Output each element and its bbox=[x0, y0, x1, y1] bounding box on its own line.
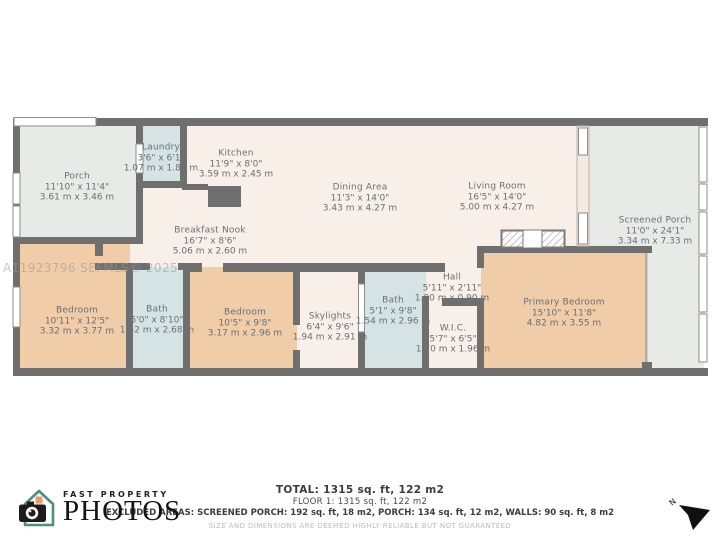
kitchen-counter-block bbox=[208, 186, 241, 207]
wall-bedroom1-entry bbox=[95, 244, 103, 256]
wall-top bbox=[96, 118, 708, 126]
window-right-2 bbox=[699, 184, 707, 210]
sliding-door-line bbox=[645, 253, 648, 362]
wall-bedroom2-skylights-b bbox=[293, 350, 300, 368]
room-label-living: Living Room 16'5" x 14'0" 5.00 m x 4.27 … bbox=[460, 181, 534, 213]
wall-porch-bottom bbox=[13, 237, 140, 244]
room-label-screened-porch: Screened Porch 11'0" x 24'1" 3.34 m x 7.… bbox=[618, 215, 692, 247]
window-porch-top bbox=[14, 118, 96, 127]
room-label-kitchen: Kitchen 11'9" x 8'0" 3.59 m x 2.45 m bbox=[199, 148, 273, 180]
fast-property-photos-logo: FAST PROPERTY PHOTOS bbox=[18, 487, 181, 529]
window-porch-left-2 bbox=[13, 206, 20, 237]
north-label: N bbox=[668, 497, 678, 508]
north-arrow: N bbox=[655, 478, 715, 536]
floor-plan-page: A11923796 SEFMLS© 2025 Porch 11'10" x 11… bbox=[0, 0, 720, 540]
living-porch-partition bbox=[577, 126, 589, 246]
wall-laundry-bottom bbox=[136, 181, 187, 188]
room-label-bedroom1: Bedroom 10'11" x 12'5" 3.32 m x 3.77 m bbox=[40, 305, 114, 337]
window-living-porch-1 bbox=[579, 128, 588, 155]
room-label-primary-bedroom: Primary Bedroom 15'10" x 11'8" 4.82 m x … bbox=[523, 297, 604, 329]
window-right-1 bbox=[699, 127, 707, 182]
room-label-wic: W.I.C. 5'7" x 6'5" 1.70 m x 1.96 m bbox=[416, 323, 490, 355]
house-camera-icon bbox=[18, 487, 60, 529]
logo-line2: PHOTOS bbox=[63, 499, 181, 524]
room-label-hall: Hall 5'11" x 2'11" 1.80 m x 0.90 m bbox=[415, 272, 489, 304]
room-label-bath1: Bath 5'0" x 8'10" 1.52 m x 2.68 m bbox=[120, 304, 194, 336]
room-label-laundry: Laundry 3'6" x 6'1" 1.07 m x 1.85 m bbox=[124, 142, 198, 174]
wall-bedroom2-top-right bbox=[223, 263, 300, 272]
room-label-dining: Dining Area 11'3" x 14'0" 3.43 m x 4.27 … bbox=[323, 182, 397, 214]
mls-watermark: A11923796 SEFMLS© 2025 bbox=[3, 261, 178, 275]
window-porch-left-1 bbox=[13, 173, 20, 204]
wall-bottom bbox=[13, 368, 708, 376]
window-bedroom1-left bbox=[13, 287, 20, 327]
window-right-3 bbox=[699, 212, 707, 254]
wall-primary-bottom-nub bbox=[642, 362, 652, 368]
window-right-4 bbox=[699, 256, 707, 312]
wall-hall-top bbox=[422, 263, 445, 272]
wall-left bbox=[13, 118, 20, 376]
window-living-porch-2 bbox=[579, 213, 588, 244]
wall-bedroom2-top-left bbox=[183, 263, 202, 272]
room-label-porch: Porch 11'10" x 11'4" 3.61 m x 3.46 m bbox=[40, 171, 114, 203]
north-arrow-triangle bbox=[679, 505, 710, 530]
closet-hatched bbox=[501, 230, 565, 248]
room-label-bedroom2: Bedroom 10'5" x 9'8" 3.17 m x 2.96 m bbox=[208, 307, 282, 339]
room-label-breakfast-nook: Breakfast Nook 16'7" x 8'6" 5.06 m x 2.6… bbox=[173, 225, 247, 257]
window-right-5 bbox=[699, 314, 707, 362]
wall-kitchen-stub bbox=[182, 184, 208, 190]
